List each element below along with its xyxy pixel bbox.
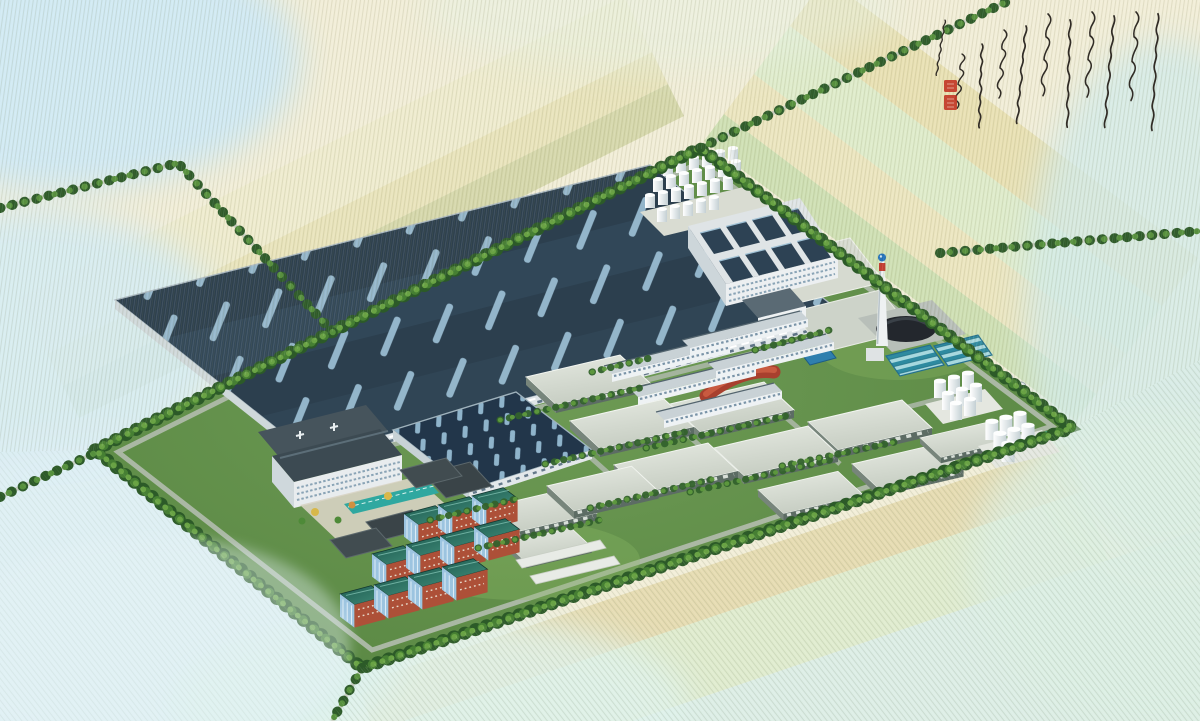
- boiler-house: [866, 348, 884, 361]
- autumn-tree: [311, 508, 319, 516]
- autumn-tree: [349, 502, 356, 509]
- seal-stamp: [944, 80, 957, 110]
- garden-tree: [299, 518, 306, 525]
- garden-tree: [335, 517, 342, 524]
- autumn-tree: [384, 492, 392, 500]
- rendering-canvas: [0, 0, 1200, 721]
